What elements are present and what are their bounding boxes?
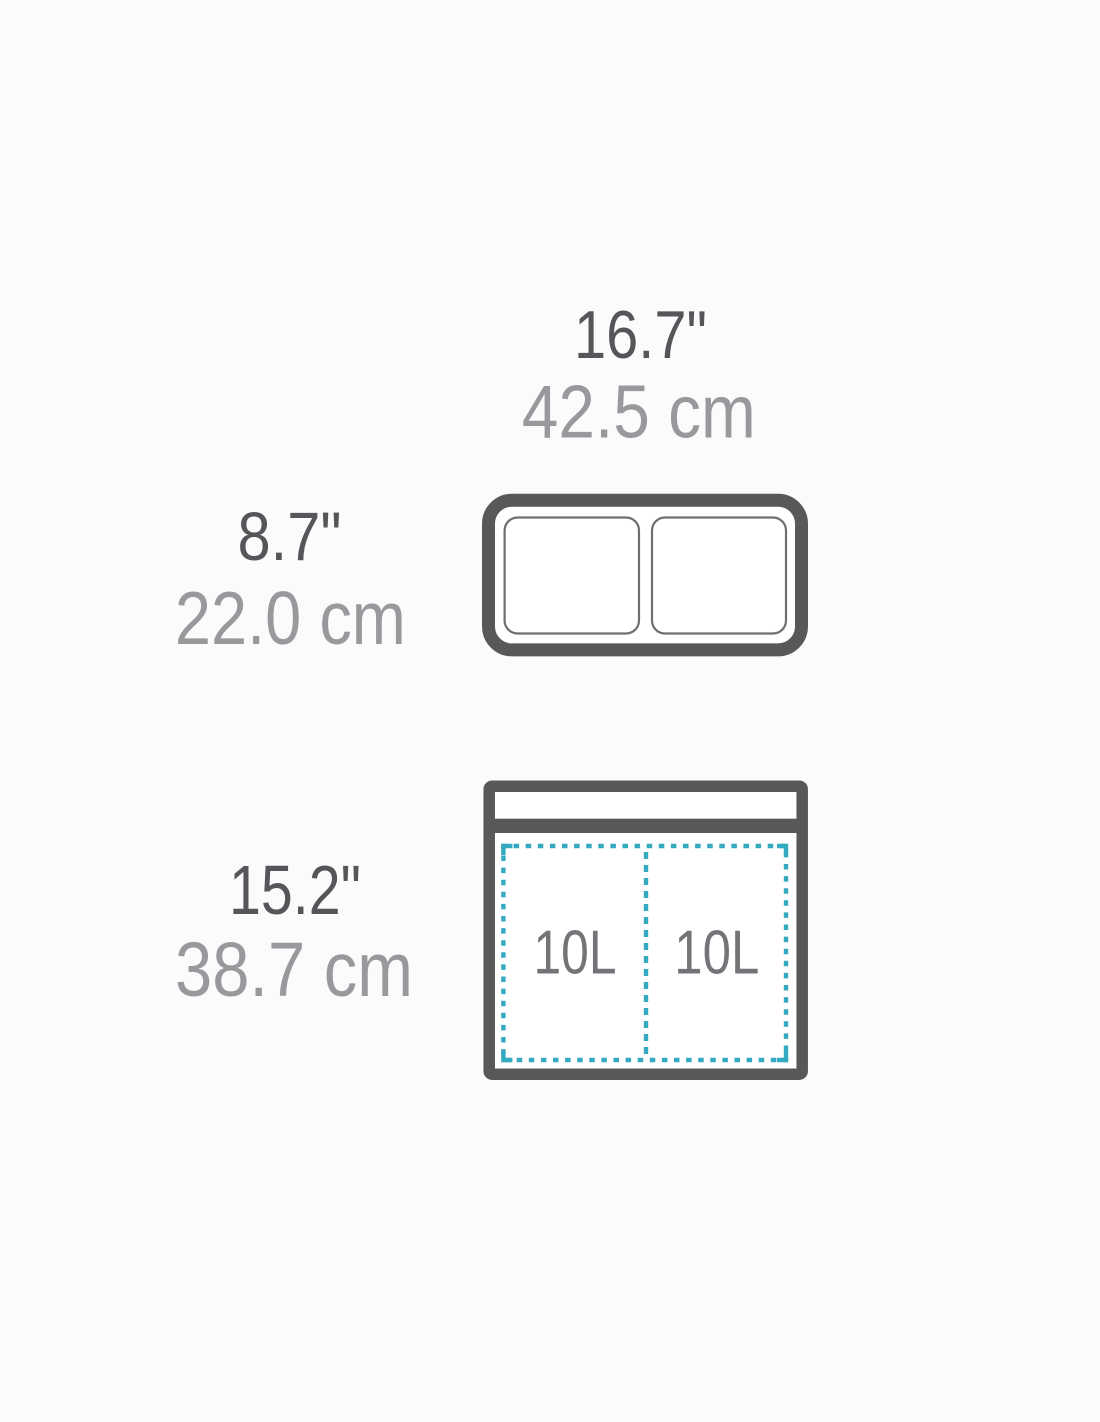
svg-text:15.2": 15.2" [229,851,361,929]
svg-text:22.0 cm: 22.0 cm [175,577,406,661]
svg-text:10L: 10L [674,918,759,987]
svg-text:38.7 cm: 38.7 cm [175,927,413,1013]
svg-text:42.5 cm: 42.5 cm [522,371,756,455]
svg-text:10L: 10L [534,918,617,987]
svg-text:16.7": 16.7" [574,297,707,373]
svg-text:8.7": 8.7" [238,498,342,575]
